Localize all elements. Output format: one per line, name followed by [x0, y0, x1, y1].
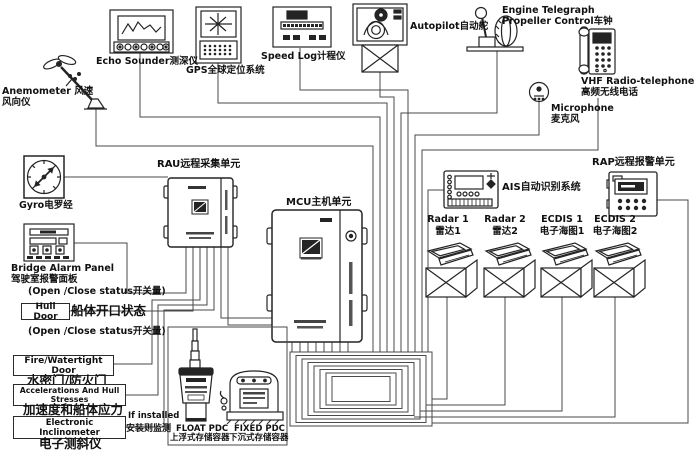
float-pdc-label-2: 上浮式存储容器 [170, 433, 230, 444]
float-pdc-icon [179, 329, 213, 421]
rap-label: RAP远程报警单元 [592, 157, 675, 168]
hull-door-status-label: (Open /Close status开关量) [28, 326, 166, 337]
gps-label: GPS全球定位系统 [186, 65, 265, 76]
ecdis1-label-2: 电子海图1 [538, 226, 586, 237]
rap-unit-icon [607, 172, 657, 216]
engine-telegraph-label-2: Propeller Control车钟 [502, 16, 613, 27]
mcu-label: MCU主机单元 [286, 197, 351, 208]
speed-log-label: Speed Log计程仪 [261, 51, 346, 62]
fixed-pdc-label-2: 下沉式存储容器 [229, 433, 289, 444]
ecdis1-label-1: ECDIS 1 [538, 214, 586, 225]
microphone-label-2: 麦克风 [551, 114, 580, 125]
anemometer-label: Anemometer 风速风向仪 [2, 86, 94, 108]
hull-door-side-label: 船体开口状态 [71, 304, 146, 318]
radar2-label-2: 雷达2 [482, 226, 528, 237]
ecdis2-console-icon [594, 243, 645, 297]
bap-status-label: (Open /Close status开关量) [28, 286, 166, 297]
if-installed-note-1: If installed [128, 411, 179, 422]
autopilot-icon [353, 4, 407, 72]
bap-label-1: Bridge Alarm Panel [11, 263, 114, 274]
vhf-phone-icon [579, 27, 615, 74]
mcu-unit-icon [267, 210, 367, 342]
hull-door-box: Hull Door [21, 303, 70, 320]
ecdis2-label-1: ECDIS 2 [591, 214, 639, 225]
rau-unit-icon [164, 178, 237, 247]
vhf-label-1: VHF Radio-telephone [581, 76, 694, 87]
bap-label-2: 驾驶室报警面板 [11, 274, 78, 285]
gyro-label: Gyro电罗经 [19, 200, 73, 211]
vhf-label-2: 高频无线电话 [581, 87, 638, 98]
radar1-label-1: Radar 1 [425, 214, 471, 225]
echo-sounder-label: Echo Sounder测深仪 [96, 56, 198, 67]
gyro-icon [24, 156, 64, 198]
radar2-console-icon [484, 243, 535, 297]
radar1-label-2: 雷达1 [425, 226, 471, 237]
rau-label: RAU远程采集单元 [157, 159, 240, 170]
microphone-icon [530, 83, 549, 102]
ecdis1-console-icon [541, 243, 592, 297]
ais-unit-icon [444, 171, 498, 208]
gps-icon [196, 7, 241, 63]
diagram-canvas: Anemometer 风速风向仪 Echo Sounder测深仪 GPS全球定位… [0, 0, 700, 452]
autopilot-label: Autopilot自动舵 [410, 21, 488, 32]
engine-telegraph-label-1: Engine Telegraph [502, 5, 595, 16]
ecdis2-label-2: 电子海图2 [591, 226, 639, 237]
microphone-label-1: Microphone [551, 103, 614, 114]
accelerations-label: 加速度和船体应力 [23, 403, 123, 417]
inclinometer-label: 电子测斜仪 [39, 437, 102, 451]
if-installed-note-2: 安装则监测 [126, 424, 171, 435]
bridge-alarm-panel-icon [24, 224, 74, 261]
speed-log-icon [273, 7, 331, 47]
fixed-pdc-icon [220, 371, 283, 424]
ais-label: AIS自动识别系统 [502, 182, 581, 193]
radar1-console-icon [426, 243, 477, 297]
radar2-label-1: Radar 2 [482, 214, 528, 225]
echo-sounder-icon [110, 10, 173, 53]
